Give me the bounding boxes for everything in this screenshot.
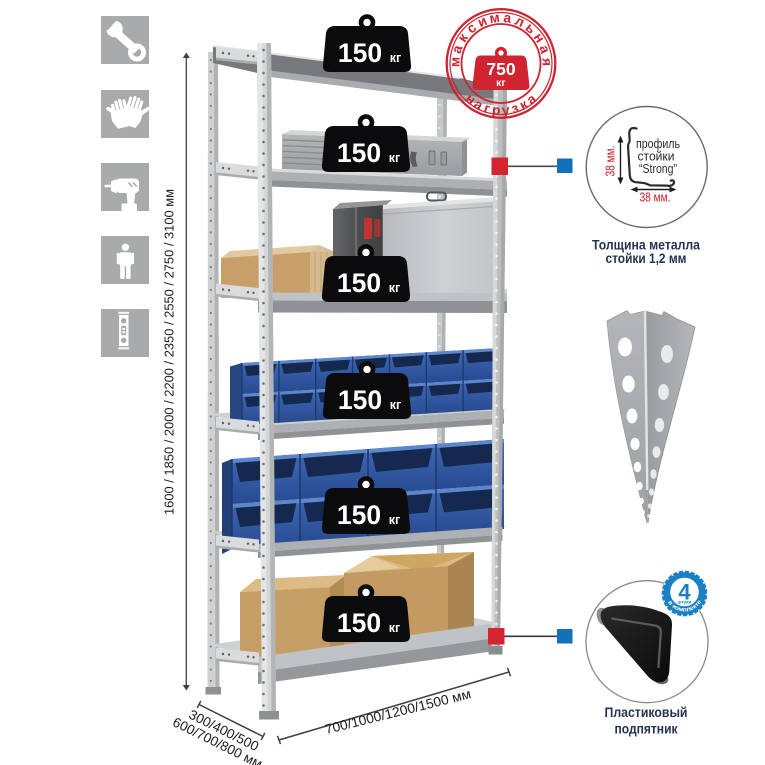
svg-text:штуки: штуки (678, 600, 692, 605)
svg-text:“Strong”: “Strong” (639, 162, 677, 176)
svg-text:стойки 1,2 мм: стойки 1,2 мм (606, 250, 687, 266)
svg-text:р: р (491, 102, 501, 118)
svg-text:м: м (447, 57, 462, 68)
svg-text:38 мм.: 38 мм. (640, 191, 671, 205)
svg-text:кг: кг (496, 77, 506, 89)
svg-text:подпятник: подпятник (615, 721, 679, 737)
svg-text:Пластиковый: Пластиковый (605, 704, 688, 720)
svg-text:38 мм.: 38 мм. (604, 146, 618, 177)
svg-text:я: я (539, 58, 554, 67)
svg-text:750: 750 (486, 59, 515, 79)
svg-text:м: м (488, 10, 500, 26)
svg-text:1600 / 1850 / 2000 / 2200 / 23: 1600 / 1850 / 2000 / 2200 / 2350 / 2550 … (162, 189, 177, 515)
